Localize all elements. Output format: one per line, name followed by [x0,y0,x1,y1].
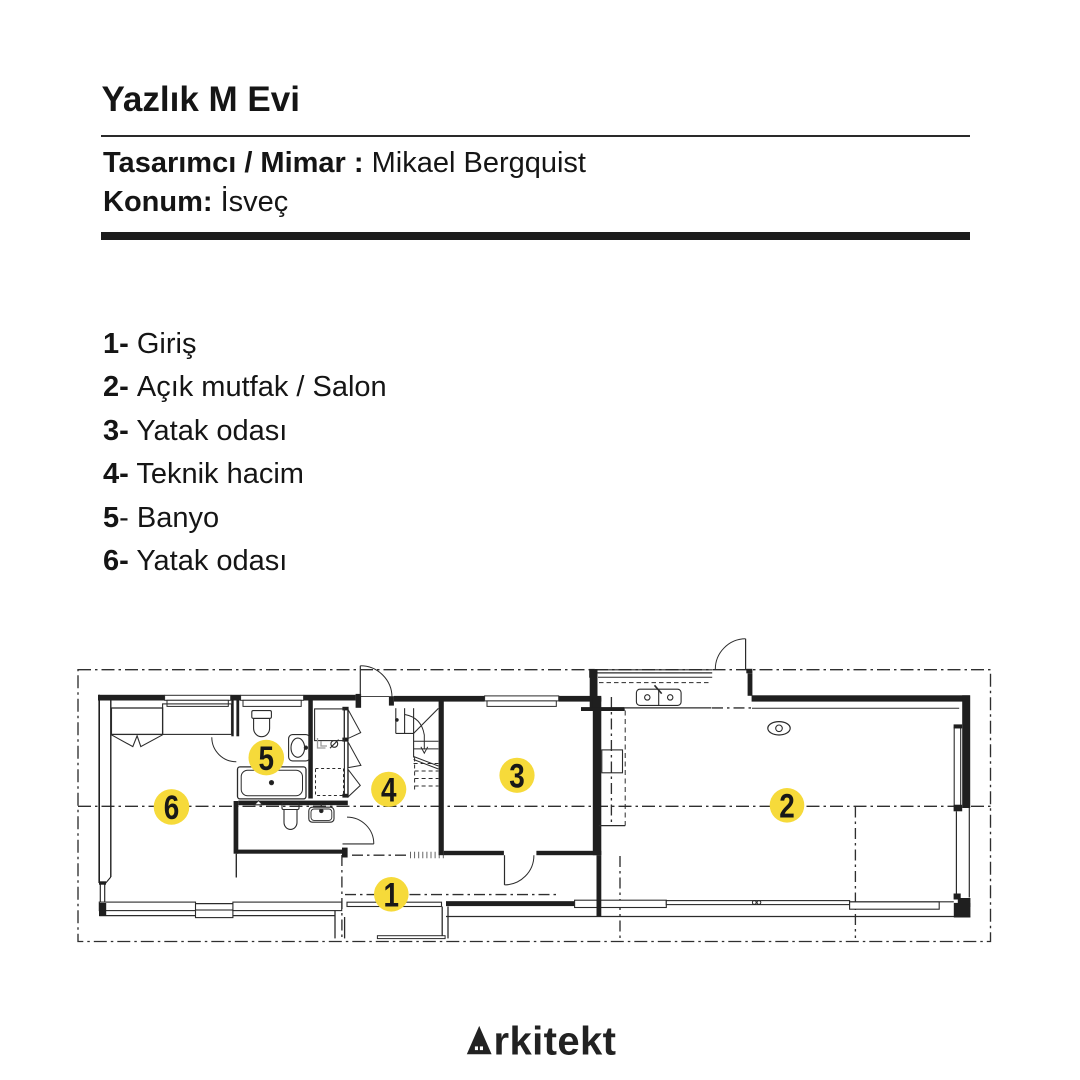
svg-text:4: 4 [381,771,397,809]
svg-text:6: 6 [164,789,180,827]
svg-text:2: 2 [779,787,795,825]
svg-text:3: 3 [509,757,525,795]
svg-text:1: 1 [384,876,400,914]
svg-text:rkitekt: rkitekt [494,1019,617,1063]
svg-text:5: 5 [259,739,275,777]
